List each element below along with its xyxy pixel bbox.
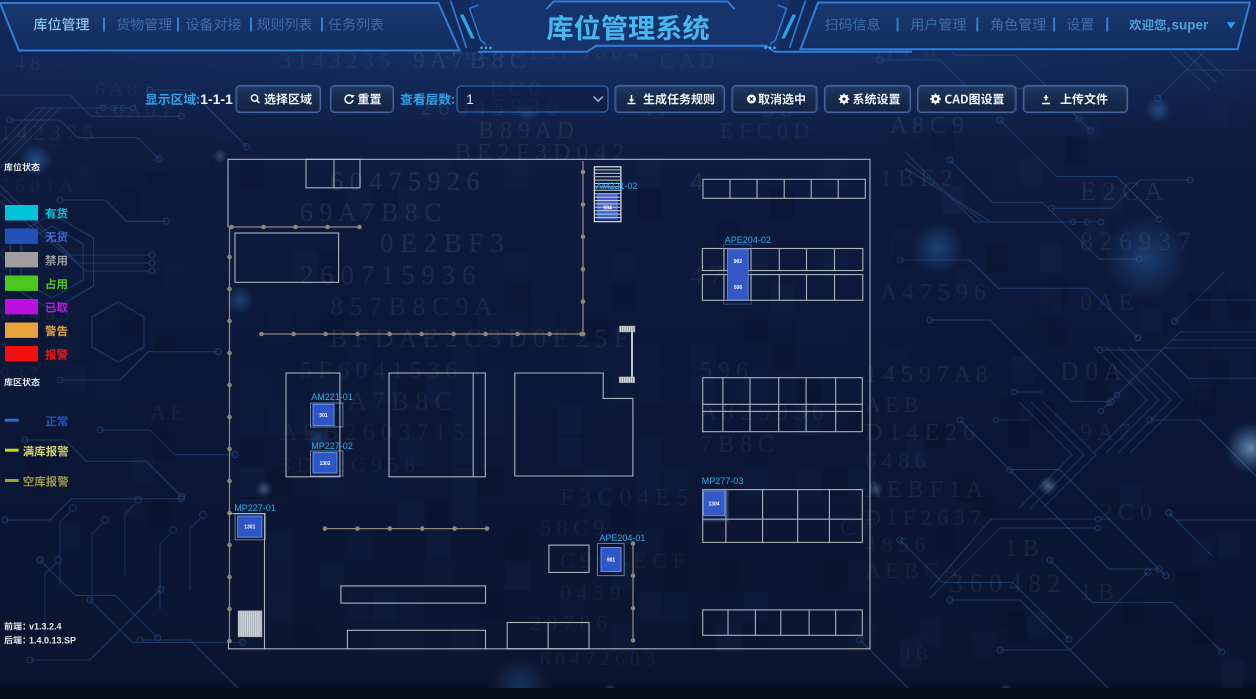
svg-text:1302: 1302 (319, 461, 330, 467)
svg-text:2 C 0: 2 C 0 (1100, 500, 1152, 526)
svg-text:501: 501 (319, 413, 328, 419)
svg-text:1301: 1301 (244, 525, 255, 531)
svg-text:7 B 8 C: 7 B 8 C (700, 432, 774, 458)
svg-text:901: 901 (607, 558, 616, 564)
svg-text:9 A 7: 9 A 7 (1080, 420, 1131, 446)
svg-text:504: 504 (603, 206, 612, 212)
svg-text:0 4 5 9: 0 4 5 9 (560, 580, 621, 605)
svg-text:4: 4 (690, 167, 703, 196)
svg-text:1 B E 2: 1 B E 2 (880, 166, 953, 192)
svg-text:5 F 6 0 4 1 5 3 6: 5 F 6 0 4 1 5 3 6 (300, 358, 457, 384)
svg-text:E 2 C A: E 2 C A (1080, 177, 1163, 206)
svg-text:8 5 7 B 8 C 9 A: 8 5 7 B 8 C 9 A (330, 292, 493, 321)
svg-text:AM221-02: AM221-02 (596, 181, 638, 191)
svg-text:6 9 A 7 B 8 C: 6 9 A 7 B 8 C (300, 198, 442, 227)
svg-text:1 4 5 9 7 A 8: 1 4 5 9 7 A 8 (865, 362, 988, 388)
svg-text:4 8 5 6: 4 8 5 6 (865, 532, 926, 557)
svg-text:2 6 0 7 1 5 9 3 6: 2 6 0 7 1 5 9 3 6 (300, 260, 476, 290)
svg-text:6 4 8 6: 6 4 8 6 (865, 448, 926, 473)
svg-text::: : (451, 92, 455, 107)
svg-text:super: super (1172, 18, 1210, 33)
svg-text:4 7: 4 7 (690, 261, 723, 290)
svg-text:D 1 F 2 6 3 7: D 1 F 2 6 3 7 (865, 505, 981, 530)
svg-text:4 8: 4 8 (15, 53, 40, 75)
svg-text:1.4.0.13.SP: 1.4.0.13.SP (29, 635, 76, 645)
svg-text:5 9 6: 5 9 6 (700, 358, 748, 384)
svg-text:C 9 0 B E C F: C 9 0 B E C F (560, 548, 685, 573)
svg-text:A 8 C 9: A 8 C 9 (890, 113, 964, 139)
svg-text:F 3 C 0 4 E 5: F 3 C 0 4 E 5 (560, 485, 688, 511)
svg-text:2 6 0 1 A: 2 6 0 1 A (0, 175, 74, 197)
svg-text:A 4 7 5 9 6: A 4 7 5 9 6 (880, 280, 986, 306)
svg-text:D 1 4 E 2 6: D 1 4 E 2 6 (865, 420, 975, 446)
svg-text:D 0 A: D 0 A (1060, 357, 1122, 386)
svg-text:1 4 2 3 7 5: 1 4 2 3 7 5 (0, 120, 94, 145)
svg-text:APE204-01: APE204-01 (599, 533, 645, 543)
svg-text:E F C 0 D: E F C 0 D (720, 118, 809, 143)
svg-text:6 0 4 7 2 6 0 3: 6 0 4 7 2 6 0 3 (540, 648, 655, 670)
svg-text:A E: A E (150, 400, 184, 425)
svg-text:APE204-02: APE204-02 (725, 235, 771, 245)
svg-text:v1.3.2.4: v1.3.2.4 (29, 622, 62, 632)
svg-text:3 6 0 4 8 2: 3 6 0 4 8 2 (950, 569, 1061, 598)
svg-text:MP277-03: MP277-03 (702, 476, 744, 486)
svg-text:6 0 4 7 5 9 2 6: 6 0 4 7 5 9 2 6 (330, 167, 480, 196)
svg-text:1304: 1304 (708, 502, 719, 508)
svg-text:9 B: 9 B (900, 643, 928, 665)
svg-text:AM221-01: AM221-01 (311, 392, 353, 402)
svg-text:B E 2 F 3 D 0 4 2: B E 2 F 3 D 0 4 2 (455, 140, 624, 166)
svg-text:A E B: A E B (865, 392, 919, 417)
svg-text:5 8 C 9: 5 8 C 9 (540, 515, 604, 540)
svg-text:902: 902 (734, 259, 743, 265)
svg-text:0 E 2 B F 3: 0 E 2 B F 3 (380, 228, 504, 258)
svg-text:3 D 1 2 C 9 5 8: 3 D 1 2 C 9 5 8 (280, 452, 415, 477)
svg-text:MP227-01: MP227-01 (234, 503, 276, 513)
svg-text:MP227-02: MP227-02 (311, 441, 353, 451)
svg-text:506: 506 (734, 285, 743, 291)
svg-text:1 B: 1 B (1005, 536, 1039, 562)
svg-text:6 A 8 1: 6 A 8 1 (95, 79, 152, 101)
svg-text:1 B: 1 B (1080, 580, 1114, 606)
svg-text:1: 1 (466, 91, 474, 107)
svg-text:1-1-1: 1-1-1 (200, 91, 233, 107)
svg-text:A E B C A: A E B C A (865, 558, 959, 583)
